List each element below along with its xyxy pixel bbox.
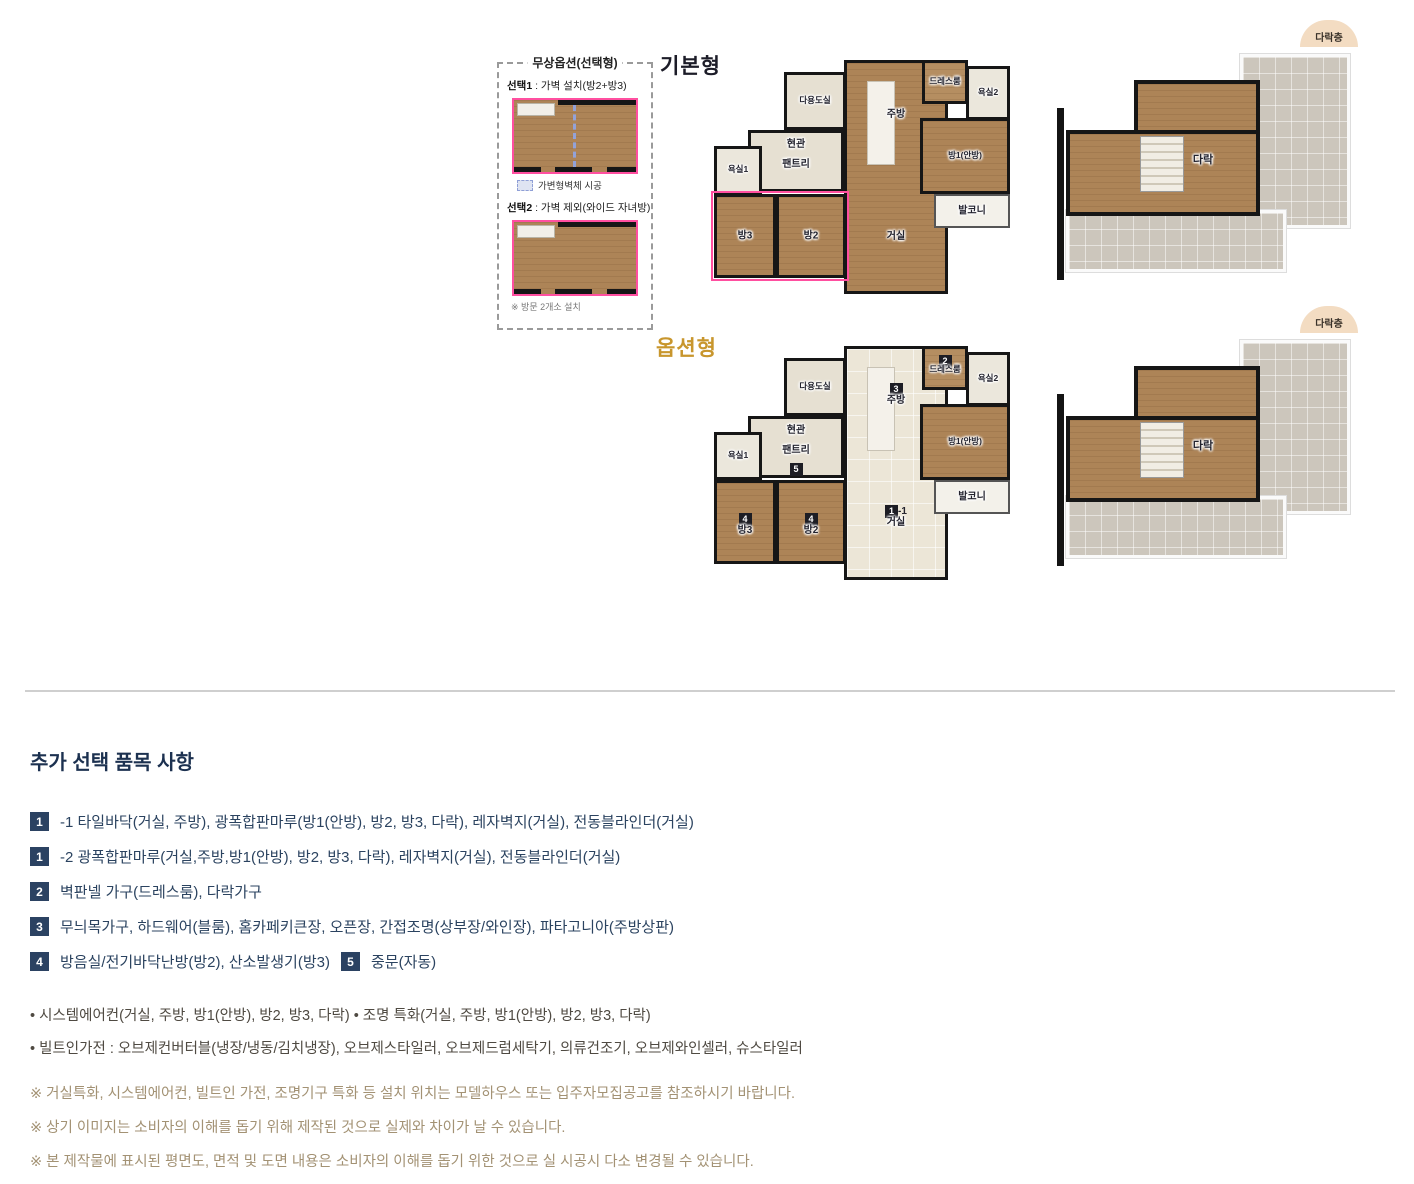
room-label-living: 거실: [847, 517, 945, 529]
option-area-highlight: [711, 191, 849, 281]
footnotes: ※ 거실특화, 시스템에어컨, 빌트인 가전, 조명기구 특화 등 설치 위치는…: [30, 1082, 1370, 1171]
item-number-badge: 1: [30, 812, 49, 831]
wall-segment: [607, 289, 636, 294]
room-bath2: 욕실2: [966, 352, 1010, 406]
attic-room-upper: [1134, 80, 1260, 136]
item-number-badge: 3: [30, 917, 49, 936]
item-number-badge: 5: [341, 952, 360, 971]
room-label-entrance: 현관: [751, 139, 841, 151]
bullet-line: • 시스템에어컨(거실, 주방, 방1(안방), 방2, 방3, 다락) • 조…: [30, 1004, 1370, 1025]
bullet-line: • 빌트인가전 : 오브제컨버터블(냉장/냉동/김치냉장), 오브제스타일러, …: [30, 1037, 1370, 1058]
item-number-badge: 1: [30, 847, 49, 866]
room-bath1: 욕실1: [714, 146, 762, 194]
attic-floor-plan-option: 다락층 다락: [1052, 328, 1350, 590]
room-label-pantry: 팬트리: [751, 159, 841, 171]
item-text: 방음실/전기바닥난방(방2), 산소발생기(방3): [60, 951, 330, 972]
room-bedroom2: 4 방2: [776, 480, 846, 564]
option-item-row: 3 무늬목가구, 하드웨어(블룸), 홈카페키큰장, 오픈장, 간접조명(상부장…: [30, 916, 1370, 937]
room-utility: 다용도실: [784, 72, 846, 130]
item-number-badge: 4: [30, 952, 49, 971]
room-label-living: 거실: [847, 231, 945, 243]
additional-items-section: 추가 선택 품목 사항 1 -1 타일바닥(거실, 주방), 광폭합판마루(방1…: [30, 746, 1370, 1184]
basic-floor-plan: 다용도실 주방 거실 드레스룸 욕실2 방1(안방) 발코니 현관 팬트리 욕실…: [708, 42, 1013, 304]
footnote-line: ※ 거실특화, 시스템에어컨, 빌트인 가전, 조명기구 특화 등 설치 위치는…: [30, 1082, 1370, 1103]
section-heading: 추가 선택 품목 사항: [30, 746, 1370, 775]
room-bath1: 욕실1: [714, 432, 762, 480]
choice1-desc: : 가벽 설치(방2+방3): [532, 80, 626, 92]
item-text: 무늬목가구, 하드웨어(블룸), 홈카페키큰장, 오픈장, 간접조명(상부장/와…: [60, 916, 674, 937]
choice1-line: 선택1 : 가벽 설치(방2+방3): [507, 78, 643, 93]
choice2-plan-thumbnail: [512, 220, 638, 296]
wall-segment: [607, 167, 636, 172]
option-floor-plan: 다용도실 3 주방 1-1 거실 2 드레스룸 욕실2 방1(안방) 발코니 현…: [708, 328, 1013, 590]
wall-segment: [514, 289, 541, 294]
room-balcony: 발코니: [934, 194, 1010, 228]
wall-segment: [558, 100, 636, 105]
room-entrance: 현관 팬트리: [748, 130, 844, 192]
room-balcony: 발코니: [934, 480, 1010, 514]
section-divider: [25, 690, 1395, 692]
attic-level-badge: 다락층: [1300, 20, 1358, 47]
room-label-pantry: 팬트리: [751, 445, 841, 457]
attic-terrace: [1066, 210, 1286, 272]
choice1-label: 선택1: [507, 80, 532, 92]
choice2-desc: : 가벽 제외(와이드 자녀방): [532, 202, 650, 214]
footnote-line: ※ 상기 이미지는 소비자의 이해를 돕기 위해 제작된 것으로 실제와 차이가…: [30, 1116, 1370, 1137]
room-entrance: 현관 팬트리 5: [748, 416, 844, 478]
choice1-plan-thumbnail: [512, 98, 638, 174]
option-item-row: 2 벽판넬 가구(드레스룸), 다락가구: [30, 881, 1370, 902]
free-option-panel: 무상옵션(선택형) 선택1 : 가벽 설치(방2+방3) 가변형벽체 시공 선택…: [497, 62, 653, 330]
room-utility: 다용도실: [784, 358, 846, 416]
movable-wall-legend-label: 가변형벽체 시공: [538, 178, 602, 192]
room-bath2: 욕실2: [966, 66, 1010, 120]
wall-segment: [555, 167, 592, 172]
room-master: 방1(안방): [920, 118, 1010, 194]
room-dressroom: 2 드레스룸: [922, 346, 968, 390]
room-label-attic: 다락: [1148, 154, 1258, 167]
room-label-attic: 다락: [1148, 440, 1258, 453]
closet-shape: [517, 103, 555, 116]
wall-segment: [514, 167, 541, 172]
option-item-row: 1 -1 타일바닥(거실, 주방), 광폭합판마루(방1(안방), 방2, 방3…: [30, 811, 1370, 832]
room-master: 방1(안방): [920, 404, 1010, 480]
attic-level-badge: 다락층: [1300, 306, 1358, 333]
attic-room-upper: [1134, 366, 1260, 422]
item-text: 벽판넬 가구(드레스룸), 다락가구: [60, 881, 262, 902]
item-text: -1 타일바닥(거실, 주방), 광폭합판마루(방1(안방), 방2, 방3, …: [60, 811, 694, 832]
wall-segment: [558, 222, 636, 227]
item-text: -2 광폭합판마루(거실,주방,방1(안방), 방2, 방3, 다락), 레자벽…: [60, 846, 620, 867]
attic-floor-plan-basic: 다락층 다락: [1052, 42, 1350, 304]
movable-wall-legend-swatch: [517, 180, 533, 191]
item-number-badge: 2: [30, 882, 49, 901]
free-option-panel-title: 무상옵션(선택형): [527, 54, 622, 71]
room-bedroom3: 4 방3: [714, 480, 776, 564]
wall-segment: [1057, 108, 1064, 280]
movable-wall-legend: 가변형벽체 시공: [517, 178, 643, 192]
choice2-line: 선택2 : 가벽 제외(와이드 자녀방): [507, 200, 643, 215]
pantry-badge: 5: [751, 459, 841, 477]
panel-footnote: ※ 방문 2개소 설치: [511, 300, 643, 313]
option-item-row: 1 -2 광폭합판마루(거실,주방,방1(안방), 방2, 방3, 다락), 레…: [30, 846, 1370, 867]
room-dressroom: 드레스룸: [922, 60, 968, 104]
kitchen-island-shape: [867, 81, 895, 165]
bullet-list: • 시스템에어컨(거실, 주방, 방1(안방), 방2, 방3, 다락) • 조…: [30, 1004, 1370, 1058]
room-label-entrance: 현관: [751, 425, 841, 437]
wall-segment: [555, 289, 592, 294]
wall-segment: [1057, 394, 1064, 566]
item-text: 중문(자동): [371, 951, 436, 972]
option-item-row: 4 방음실/전기바닥난방(방2), 산소발생기(방3) 5 중문(자동): [30, 951, 1370, 972]
choice2-label: 선택2: [507, 202, 532, 214]
movable-wall-dashed: [573, 105, 576, 167]
closet-shape: [517, 225, 555, 238]
attic-terrace: [1066, 496, 1286, 558]
footnote-line: ※ 본 제작물에 표시된 평면도, 면적 및 도면 내용은 소비자의 이해를 돕…: [30, 1150, 1370, 1171]
